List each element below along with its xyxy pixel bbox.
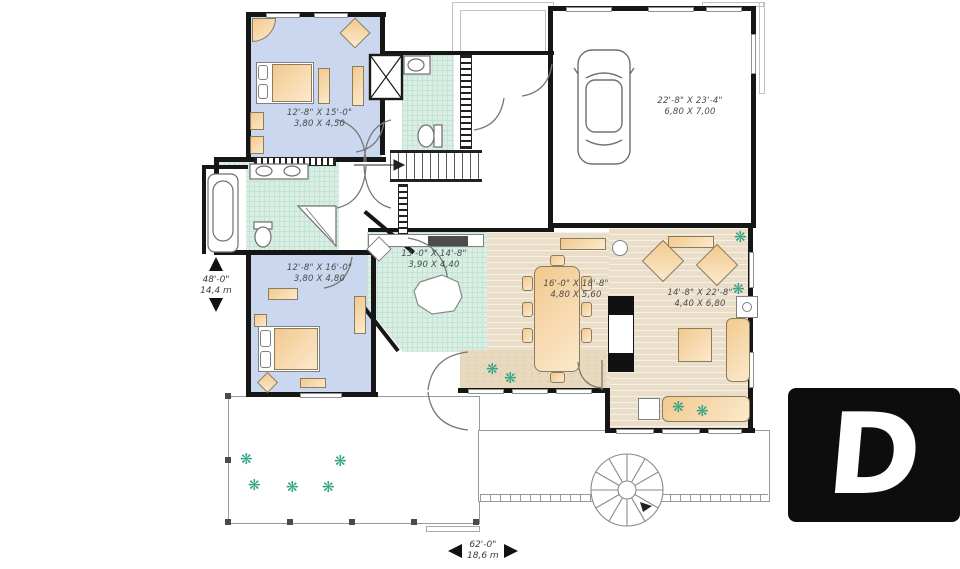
- depth-imperial: 48'-0": [193, 275, 239, 286]
- window: [662, 429, 700, 434]
- arrow-up-icon: [209, 257, 223, 271]
- wall: [548, 223, 756, 228]
- label-imperial: 22'-8" X 23'-4": [630, 96, 750, 107]
- window: [616, 429, 654, 434]
- dining-chair: [522, 328, 533, 343]
- window: [648, 7, 694, 12]
- window: [751, 34, 756, 74]
- label-bedroom-top: 12'-8" X 15'-0" 3,80 X 4,50: [262, 108, 377, 130]
- label-dining-room: 16'-0" X 18'-8" 4,80 X 5,60: [520, 279, 632, 301]
- plant-icon: ❋: [248, 478, 261, 493]
- window: [708, 429, 742, 434]
- arrow-right-icon: [504, 544, 518, 558]
- logo: D: [788, 388, 960, 522]
- roof-outline: [759, 2, 765, 94]
- dining-chair: [581, 302, 592, 317]
- roof-outline: [460, 10, 546, 52]
- dresser: [352, 66, 364, 106]
- label-metric: 3,90 X 4,40: [380, 260, 488, 271]
- armoire: [354, 296, 366, 334]
- deck-post: [225, 519, 231, 525]
- width-imperial: 62'-0": [467, 540, 499, 551]
- label-imperial: 12'-8" X 16'-0": [262, 263, 377, 274]
- wall: [202, 165, 206, 254]
- wall: [605, 388, 610, 433]
- wall: [458, 228, 554, 232]
- deck-post: [411, 519, 417, 525]
- deck-post: [225, 393, 231, 399]
- plant-icon: ❋: [286, 480, 299, 495]
- label-imperial: 14'-8" X 22'-8": [644, 288, 756, 299]
- plant-icon: ❋: [672, 400, 685, 415]
- bed-blanket: [272, 64, 312, 102]
- stairs: [390, 150, 482, 182]
- window: [314, 13, 348, 18]
- wall: [380, 12, 385, 155]
- bench: [300, 378, 326, 388]
- fireplace: [608, 314, 634, 354]
- window: [706, 7, 742, 12]
- dining-chair: [550, 372, 565, 383]
- arrow-left-icon: [448, 544, 462, 558]
- deck-post: [349, 519, 355, 525]
- window: [512, 389, 548, 394]
- label-living-room: 14'-8" X 22'-8" 4,40 X 6,80: [644, 288, 756, 310]
- wall: [204, 165, 248, 169]
- pantry-hatch: [460, 55, 472, 149]
- label-imperial: 12'-8" X 15'-0": [262, 108, 377, 119]
- plant-icon: ❋: [240, 452, 253, 467]
- dresser: [318, 68, 330, 104]
- plant-icon: ❋: [486, 362, 499, 377]
- dresser: [268, 288, 298, 300]
- floor-plan: ❋ ❋ ❋ ❋ ❋ ❋ ❋ ❋ ❋ ❋ ❋ 12'-8" X 15'-0" 3,…: [0, 0, 960, 569]
- tub-alcove: [206, 169, 246, 250]
- coffee-table: [678, 328, 712, 362]
- deck-post: [473, 519, 479, 525]
- label-bedroom-bottom: 12'-8" X 16'-0" 3,80 X 4,80: [262, 263, 377, 285]
- veranda: [478, 430, 770, 502]
- deck: [228, 396, 480, 524]
- veranda-railing: [480, 494, 768, 502]
- label-metric: 6,80 X 7,00: [630, 107, 750, 118]
- width-metric: 18,6 m: [467, 551, 499, 562]
- window: [468, 389, 504, 394]
- sofa: [726, 318, 750, 382]
- deck-post: [287, 519, 293, 525]
- arrow-down-icon: [209, 298, 223, 312]
- room-bathroom: [402, 55, 454, 153]
- pillow: [260, 351, 271, 368]
- pillow: [258, 84, 268, 99]
- logo-letter: D: [823, 399, 926, 511]
- label-metric: 4,40 X 6,80: [644, 299, 756, 310]
- plant-icon: ❋: [322, 480, 335, 495]
- depth-metric: 14,4 m: [193, 286, 239, 297]
- window: [556, 389, 592, 394]
- stair-rail-hatch: [398, 184, 408, 236]
- pillow: [260, 330, 271, 347]
- cabinet: [668, 236, 714, 248]
- plant-icon: ❋: [334, 454, 347, 469]
- bed-blanket: [274, 328, 318, 370]
- label-garage: 22'-8" X 23'-4" 6,80 X 7,00: [630, 96, 750, 118]
- wall: [246, 252, 251, 397]
- label-kitchen-dinette: 13'-0" X 14'-8" 3,90 X 4,40: [380, 249, 488, 271]
- dining-chair: [550, 255, 565, 266]
- label-imperial: 13'-0" X 14'-8": [380, 249, 488, 260]
- window-sill-hatch: [254, 157, 336, 166]
- dining-chair: [522, 302, 533, 317]
- lamp-table: [612, 240, 628, 256]
- fireplace: [608, 354, 634, 372]
- label-imperial: 16'-0" X 18'-8": [520, 279, 632, 290]
- wall: [214, 250, 376, 255]
- dining-chair: [581, 328, 592, 343]
- dimension-width: 62'-0" 18,6 m: [448, 540, 518, 562]
- wall: [214, 157, 219, 255]
- window: [749, 252, 754, 288]
- nightstand: [250, 136, 264, 154]
- deck-steps: [426, 526, 480, 532]
- plant-icon: ❋: [504, 371, 517, 386]
- label-metric: 3,80 X 4,80: [262, 274, 377, 285]
- window: [300, 393, 342, 398]
- plant-icon: ❋: [734, 230, 747, 245]
- dimension-depth: 48'-0" 14,4 m: [193, 256, 239, 316]
- wall: [548, 6, 553, 228]
- deck-post: [225, 457, 231, 463]
- kitchen-shelf: [428, 236, 468, 246]
- window: [566, 7, 612, 12]
- buffet: [560, 238, 606, 250]
- side-table: [638, 398, 660, 420]
- plant-icon: ❋: [696, 404, 709, 419]
- label-metric: 4,80 X 5,60: [520, 290, 632, 301]
- label-metric: 3,80 X 4,50: [262, 119, 377, 130]
- pillow: [258, 65, 268, 80]
